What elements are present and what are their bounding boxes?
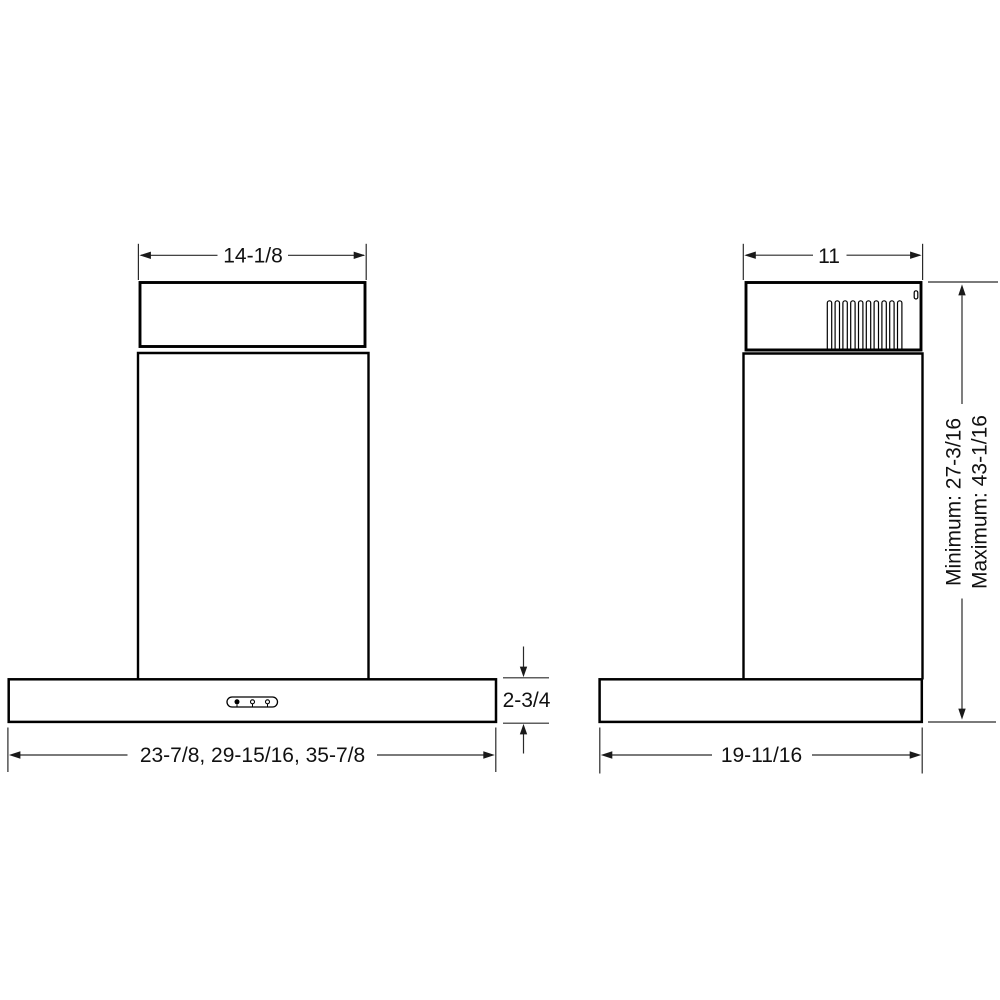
svg-text:19-11/16: 19-11/16 (721, 744, 802, 767)
svg-text:23-7/8, 29-15/16, 35-7/8: 23-7/8, 29-15/16, 35-7/8 (140, 744, 365, 767)
svg-text:11: 11 (818, 245, 840, 268)
svg-text:2-3/4: 2-3/4 (503, 689, 551, 712)
svg-text:Minimum: 27-3/16: Minimum: 27-3/16 (943, 418, 966, 586)
svg-text:14-1/8: 14-1/8 (223, 244, 283, 267)
svg-text:Maximum: 43-1/16: Maximum: 43-1/16 (969, 415, 992, 589)
